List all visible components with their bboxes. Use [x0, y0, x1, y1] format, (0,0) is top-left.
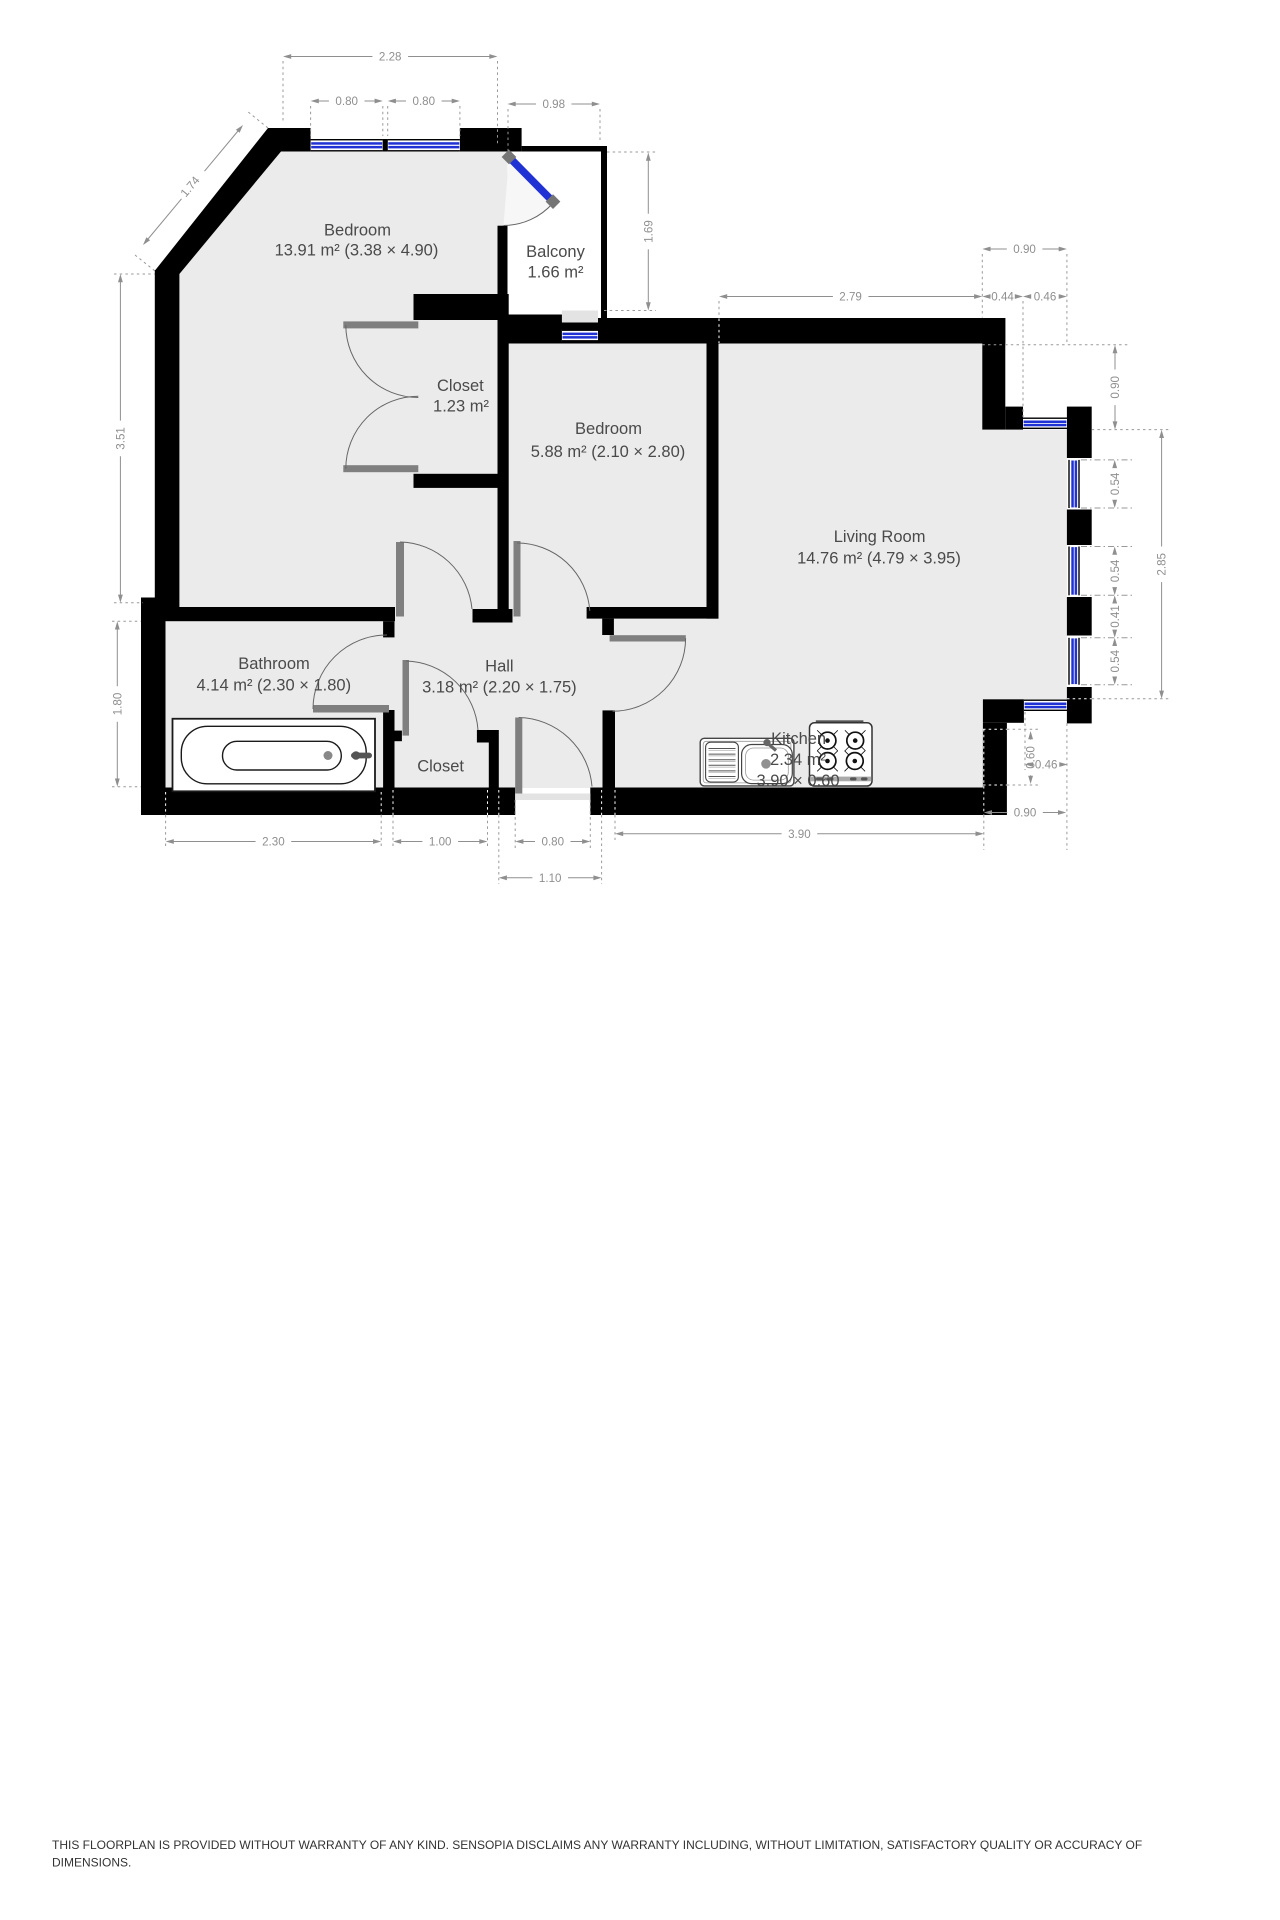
svg-text:2.85: 2.85	[1156, 553, 1169, 576]
svg-text:0.90: 0.90	[1014, 807, 1037, 820]
svg-text:14.76 m² (4.79 × 3.95): 14.76 m² (4.79 × 3.95)	[797, 550, 961, 568]
svg-text:0.90: 0.90	[1013, 243, 1036, 256]
svg-text:Closet: Closet	[437, 377, 484, 395]
svg-text:0.46: 0.46	[1034, 291, 1057, 304]
svg-text:3.18 m² (2.20 × 1.75): 3.18 m² (2.20 × 1.75)	[422, 678, 577, 696]
svg-text:Balcony: Balcony	[526, 243, 585, 261]
svg-text:DIMENSIONS.: DIMENSIONS.	[52, 1856, 131, 1870]
svg-text:2.79: 2.79	[839, 291, 862, 304]
svg-text:0.90: 0.90	[1109, 376, 1122, 399]
svg-text:4.14 m² (2.30 × 1.80): 4.14 m² (2.30 × 1.80)	[197, 676, 352, 694]
svg-text:Living Room: Living Room	[834, 528, 926, 546]
svg-text:THIS FLOORPLAN IS PROVIDED WIT: THIS FLOORPLAN IS PROVIDED WITHOUT WARRA…	[52, 1838, 1142, 1852]
svg-text:Bedroom: Bedroom	[324, 221, 391, 239]
svg-text:5.88 m² (2.10 × 2.80): 5.88 m² (2.10 × 2.80)	[531, 443, 686, 461]
svg-text:0.80: 0.80	[335, 95, 358, 108]
svg-text:Kitchen: Kitchen	[771, 730, 826, 748]
svg-text:1.69: 1.69	[642, 220, 655, 243]
svg-text:13.91 m² (3.38 × 4.90): 13.91 m² (3.38 × 4.90)	[275, 241, 439, 259]
svg-text:0.54: 0.54	[1109, 559, 1122, 582]
svg-text:Closet: Closet	[417, 758, 464, 776]
svg-text:0.54: 0.54	[1109, 472, 1122, 495]
svg-text:Hall: Hall	[485, 658, 513, 676]
svg-text:0.60: 0.60	[1025, 746, 1038, 769]
svg-text:3.90 × 0.60: 3.90 × 0.60	[756, 772, 839, 790]
svg-text:0.80: 0.80	[542, 836, 565, 849]
svg-text:2.34 m²: 2.34 m²	[770, 751, 826, 769]
svg-text:1.00: 1.00	[429, 836, 452, 849]
svg-text:Bathroom: Bathroom	[238, 655, 310, 673]
svg-text:0.80: 0.80	[413, 95, 436, 108]
svg-text:2.28: 2.28	[379, 51, 402, 64]
svg-text:0.54: 0.54	[1109, 649, 1122, 672]
svg-text:0.98: 0.98	[543, 98, 566, 111]
svg-text:0.46: 0.46	[1035, 759, 1058, 772]
svg-text:1.10: 1.10	[539, 872, 562, 885]
svg-text:1.23 m²: 1.23 m²	[433, 397, 489, 415]
svg-text:1.66 m²: 1.66 m²	[528, 264, 584, 282]
svg-text:1.80: 1.80	[111, 693, 124, 716]
svg-text:0.44: 0.44	[991, 291, 1014, 304]
svg-text:3.90: 3.90	[788, 828, 811, 841]
svg-text:3.51: 3.51	[115, 427, 128, 450]
svg-text:Bedroom: Bedroom	[575, 420, 642, 438]
svg-text:0.41: 0.41	[1109, 605, 1122, 628]
svg-text:2.30: 2.30	[262, 836, 285, 849]
